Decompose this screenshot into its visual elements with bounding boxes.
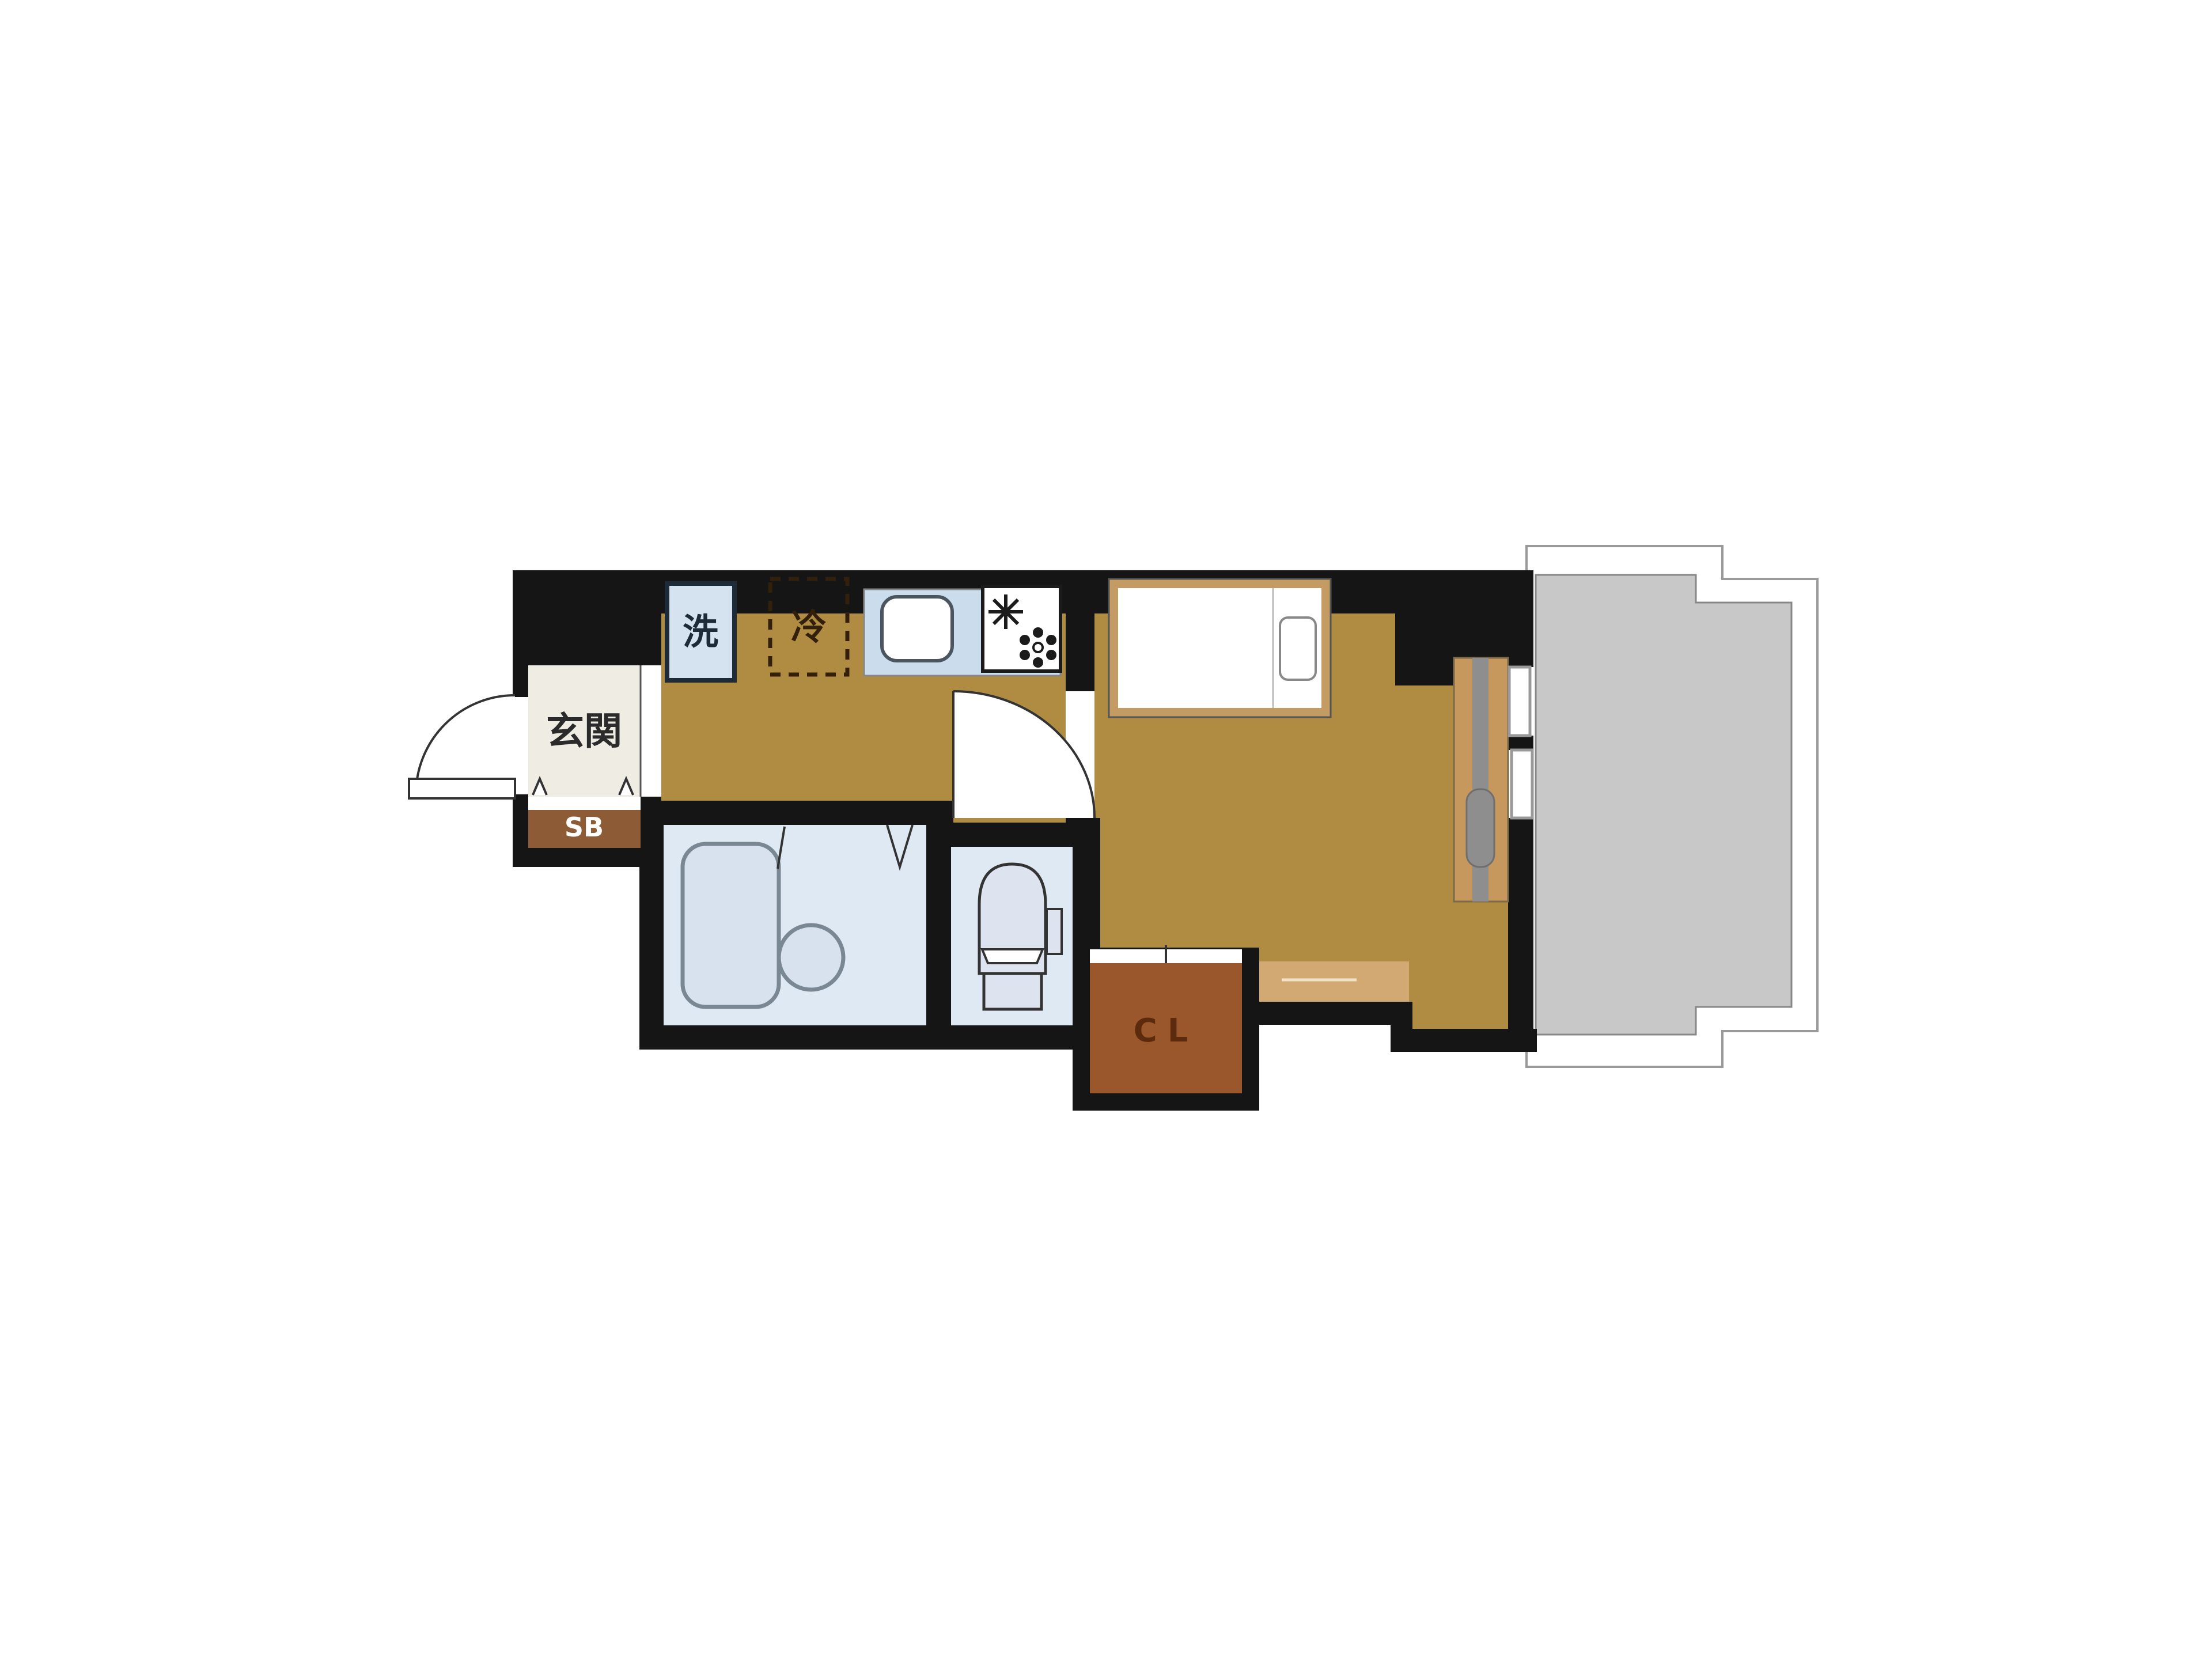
- bed: [1109, 579, 1331, 717]
- bathtub: [683, 844, 779, 1007]
- bathroom-left-wall: [639, 801, 664, 1050]
- wall-under-sb: [513, 848, 661, 867]
- toilet-flush-handle: [1047, 909, 1062, 954]
- toilet-seat-line: [982, 949, 1043, 963]
- floor-plan-page: SB 洗 冷: [0, 0, 2212, 1659]
- floor-plan-svg: SB 洗 冷: [0, 0, 2212, 1659]
- window-wall-divider: [1508, 736, 1533, 750]
- window-glass-pane-lower: [1512, 750, 1532, 818]
- bed-pillow: [1280, 618, 1316, 680]
- washer-label: 洗: [683, 611, 718, 653]
- bathroom-top-wall: [639, 801, 953, 825]
- balcony: [1536, 575, 1791, 1035]
- room-left-wall-lower: [1066, 818, 1100, 847]
- window-handle: [1467, 789, 1494, 867]
- shoe-box-label: SB: [565, 812, 604, 843]
- water-rooms-bottom-wall: [639, 1025, 1100, 1050]
- kitchen-sink: [882, 597, 952, 661]
- wash-bowl: [779, 925, 843, 990]
- floor-step-strip: [1259, 961, 1409, 1002]
- window-wall-upper: [1508, 570, 1533, 667]
- left-wall-above-door: [513, 665, 528, 697]
- entrance-top-wall-block: [513, 570, 661, 665]
- entrance-step-strip: [641, 665, 661, 801]
- room-left-wall-upper: [1066, 613, 1094, 691]
- closet-label: CL: [1134, 1012, 1199, 1050]
- shoe-box-gap: [528, 797, 641, 810]
- burner-icon-left: [988, 594, 1023, 629]
- window-glass-pane-upper: [1509, 667, 1530, 736]
- entrance-door-leaf: [409, 779, 515, 798]
- window-wall-lower: [1508, 818, 1533, 1052]
- closet: CL: [1073, 945, 1259, 1111]
- fridge-label: 冷: [791, 606, 827, 648]
- entrance-label: 玄関: [546, 709, 622, 753]
